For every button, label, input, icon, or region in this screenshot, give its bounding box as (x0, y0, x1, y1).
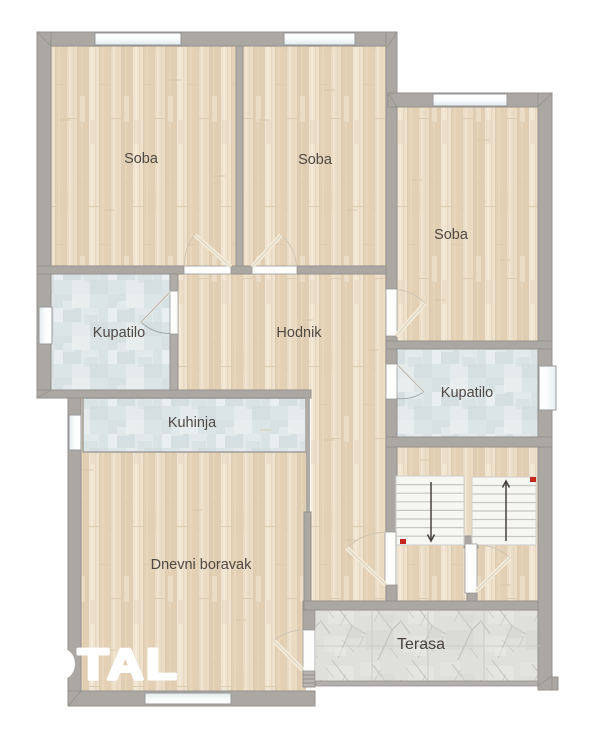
svg-text:Kupatilo: Kupatilo (93, 325, 145, 341)
svg-text:Kupatilo: Kupatilo (441, 385, 493, 401)
svg-text:Soba: Soba (434, 227, 469, 243)
svg-text:Kuhinja: Kuhinja (168, 415, 217, 431)
svg-text:Terasa: Terasa (397, 636, 445, 653)
svg-text:Hodnik: Hodnik (276, 325, 322, 341)
svg-text:Soba: Soba (124, 151, 159, 167)
svg-text:Dnevni boravak: Dnevni boravak (151, 557, 252, 573)
svg-text:Soba: Soba (298, 152, 333, 168)
svg-text:OTAL: OTAL (36, 640, 179, 689)
